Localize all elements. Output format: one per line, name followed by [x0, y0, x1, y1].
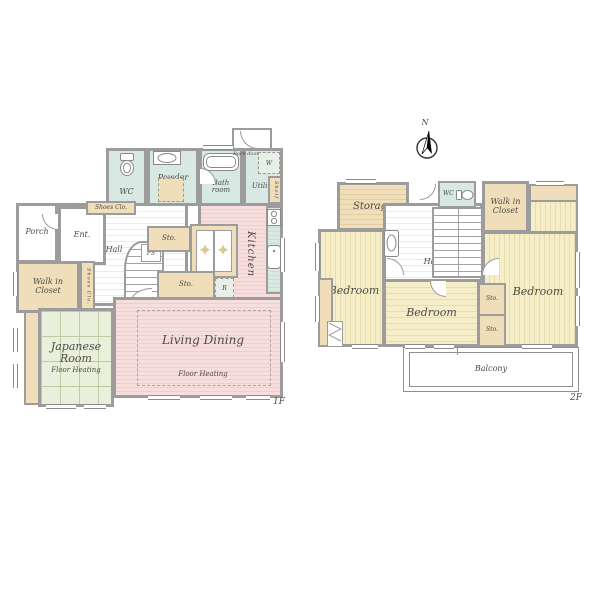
- linen-box: [158, 178, 184, 202]
- refrigerator-label: R: [222, 285, 227, 292]
- folding-door: [327, 321, 343, 347]
- walk-in-closet-1f-label: Walk in Closet: [25, 278, 71, 296]
- compass-icon: [414, 130, 440, 162]
- porch-room: Porch: [16, 203, 58, 263]
- living-floor-heating-label: Floor Heating: [168, 371, 238, 379]
- storage-small-label: Sto.: [162, 235, 176, 243]
- floor-1-label: 1F: [263, 398, 285, 408]
- window: [46, 404, 76, 409]
- entrance-label: Ent.: [74, 231, 91, 240]
- stove-icon: [267, 209, 281, 226]
- window: [13, 364, 18, 388]
- floor-2-label: 2F: [560, 394, 582, 404]
- window: [575, 252, 580, 288]
- shelf-closet: Shelf: [268, 176, 282, 204]
- decor-closet: ✦ ✦: [190, 224, 238, 278]
- window: [148, 395, 180, 400]
- window: [280, 322, 285, 362]
- wc-label: WC: [119, 188, 133, 197]
- hall-label: Hall: [100, 246, 128, 255]
- window: [405, 344, 425, 349]
- closet-top-2f: [529, 184, 578, 202]
- toilet-icon: [456, 188, 474, 202]
- shoes-closet-top: Shoes Clo.: [86, 201, 136, 215]
- walk-in-closet-2f: Walk in Closet: [482, 181, 529, 233]
- storage-upper-2f: Sto.: [478, 283, 506, 316]
- decor-cell-left: ✦: [196, 230, 214, 272]
- washer-space: W: [258, 152, 280, 174]
- wc-2f-door-arc: [420, 184, 436, 200]
- storage-upper-2f-label: Sto.: [486, 296, 498, 303]
- japanese-floor-heating-label: Floor Heating: [51, 367, 101, 375]
- window: [346, 179, 376, 184]
- window: [536, 181, 564, 186]
- storage-mid-label: Sto.: [179, 281, 193, 289]
- window: [200, 395, 232, 400]
- stairs-2f: [432, 207, 483, 278]
- shelf-label: Shelf: [272, 181, 278, 199]
- balcony-divider: [457, 347, 458, 355]
- kitchen-label: Kitchen: [240, 222, 256, 286]
- washer-label: W: [266, 160, 272, 167]
- window: [522, 344, 552, 349]
- window: [203, 145, 233, 150]
- decor-star-icon: ✦: [216, 241, 230, 261]
- porch-label: Porch: [25, 228, 48, 237]
- washbasin-icon: [153, 151, 181, 165]
- balcony-inner: Balcony: [409, 352, 573, 387]
- shoes-closet-side: Shoes Clo.: [80, 261, 95, 312]
- japanese-room-label: Japanese Room: [46, 341, 106, 365]
- walk-in-closet-1f: Walk in Closet: [16, 261, 80, 313]
- balcony-label: Balcony: [475, 365, 507, 374]
- refrigerator-space: R: [215, 278, 234, 298]
- bedroom-right-label: Bedroom: [505, 286, 571, 298]
- stairs-2f-midline: [458, 209, 459, 276]
- storage-small: Sto.: [147, 226, 191, 252]
- japanese-room: Japanese Room Floor Heating: [38, 308, 114, 407]
- storage-mid: Sto.: [157, 271, 215, 299]
- decor-star-icon: ✦: [198, 241, 212, 261]
- wc-2f: WC: [438, 181, 476, 208]
- storage-lower-2f-label: Sto.: [486, 327, 498, 334]
- toilet-icon: [117, 153, 137, 177]
- walk-in-closet-2f-label: Walk in Closet: [487, 198, 525, 216]
- wc-2f-label: WC: [443, 191, 454, 198]
- window: [315, 296, 320, 322]
- shoes-closet-side-label: Shoes Clo.: [85, 268, 91, 305]
- window: [315, 243, 320, 271]
- window: [352, 344, 378, 349]
- floorplan-canvas: Kitchen WC Powder room Bath room: [0, 0, 600, 600]
- window: [84, 404, 106, 409]
- window: [434, 344, 454, 349]
- balcony: Balcony: [403, 347, 579, 392]
- back-door-label: Back door: [233, 152, 259, 158]
- shoes-closet-top-label: Shoes Clo.: [95, 205, 127, 212]
- kitchen-sink-icon: [267, 245, 281, 269]
- bedroom-left-label: Bedroom: [326, 285, 382, 297]
- decor-cell-right: ✦: [214, 230, 232, 272]
- window: [280, 238, 285, 272]
- window: [575, 296, 580, 326]
- window: [13, 328, 18, 352]
- storage-lower-2f: Sto.: [478, 314, 506, 347]
- compass-north-label: N: [416, 119, 434, 128]
- bedroom-right-upper: [529, 200, 578, 235]
- vanity-icon: [384, 230, 399, 257]
- window: [13, 272, 18, 296]
- bedroom-mid-label: Bedroom: [406, 307, 457, 319]
- living-dining-label: Living Dining: [148, 334, 258, 347]
